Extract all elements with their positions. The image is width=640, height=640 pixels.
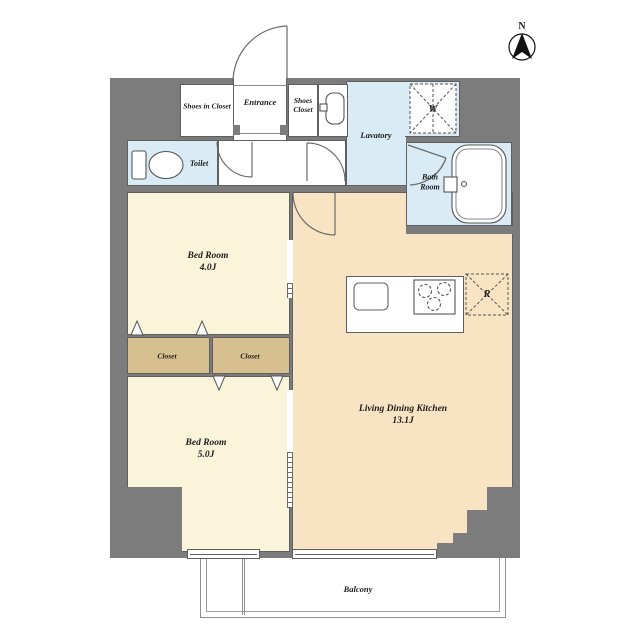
label-compass-north: N	[518, 21, 525, 33]
label-shoes-in-closet: Shoes in Closet	[183, 102, 231, 111]
lavatory-door	[307, 143, 345, 181]
closet-right-bifold-markers	[213, 376, 283, 390]
bed-room-5-size: 5.0J	[186, 449, 227, 461]
label-bath-room: Bath Room	[413, 172, 447, 191]
washbasin-fixture	[320, 93, 344, 124]
label-closet-right: Closet	[240, 352, 259, 361]
ldk-size: 13.1J	[359, 415, 447, 427]
label-washing-machine: W	[429, 104, 438, 116]
label-closet-left: Closet	[157, 352, 176, 361]
compass-icon	[509, 33, 535, 60]
label-shoes-closet: Shoes Closet	[287, 96, 319, 114]
label-lavatory: Lavatory	[360, 130, 391, 140]
bed-room-4-name: Bed Room	[188, 250, 229, 262]
label-balcony: Balcony	[344, 584, 373, 594]
floor-plan: Shoes in Closet Entrance Shoes Closet La…	[0, 0, 640, 640]
label-ldk: Living Dining Kitchen 13.1J	[359, 403, 447, 427]
entrance-door	[233, 26, 287, 82]
bed-room-4-size: 4.0J	[188, 262, 229, 274]
label-refrigerator: R	[484, 289, 491, 301]
label-bed-room-5: Bed Room 5.0J	[186, 437, 227, 461]
ldk-door	[293, 193, 335, 235]
toilet-fixture	[132, 151, 183, 179]
closet-left-bifold-markers	[131, 321, 208, 335]
label-entrance: Entrance	[244, 97, 277, 107]
ldk-name: Living Dining Kitchen	[359, 403, 447, 415]
kitchen-stove	[414, 280, 455, 314]
label-toilet: Toilet	[190, 159, 208, 169]
bathtub	[452, 145, 506, 223]
toilet-door	[217, 142, 252, 177]
label-bed-room-4: Bed Room 4.0J	[188, 250, 229, 274]
kitchen-sink	[354, 283, 388, 310]
bed-room-5-name: Bed Room	[186, 437, 227, 449]
